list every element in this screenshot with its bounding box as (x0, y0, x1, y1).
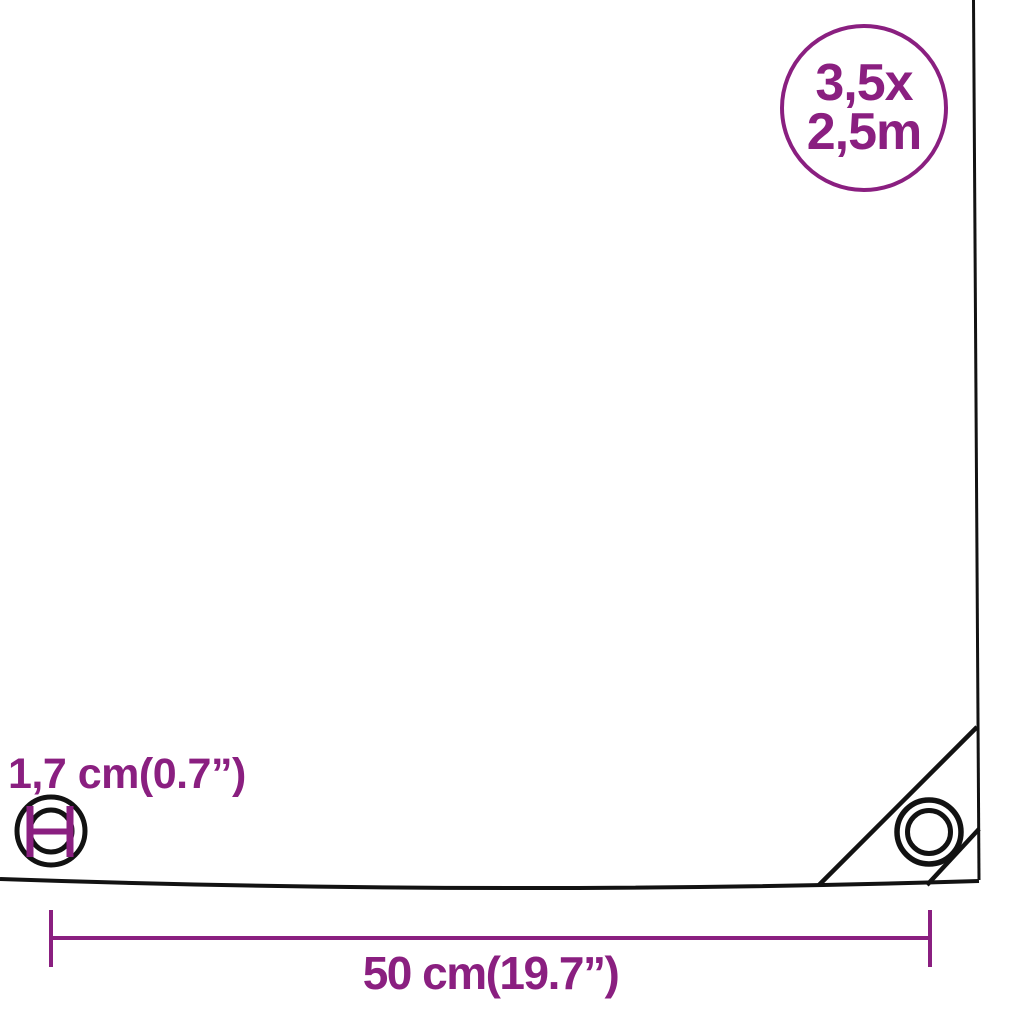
grommet-diameter-label: 1,7 cm(0.7”) (8, 750, 246, 799)
size-badge: 3,5x 2,5m (780, 24, 948, 192)
size-badge-line1: 3,5x (815, 59, 912, 108)
size-badge-line2: 2,5m (807, 108, 922, 157)
corner-fold-line (819, 727, 977, 885)
grommet-detail-icon (17, 797, 85, 865)
corner-grommet-inner-ring (908, 811, 951, 854)
corner-distance-label: 50 cm(19.7”) (0, 946, 981, 1000)
product-dimension-diagram: 3,5x 2,5m 1,7 cm(0.7”) 50 cm(19.7”) (0, 0, 1024, 1024)
tarpaulin-bottom-edge (0, 879, 979, 888)
diameter-marker-crossbar (30, 829, 70, 835)
tarpaulin-right-edge (974, 0, 980, 880)
corner-grommet-icon (897, 800, 961, 864)
